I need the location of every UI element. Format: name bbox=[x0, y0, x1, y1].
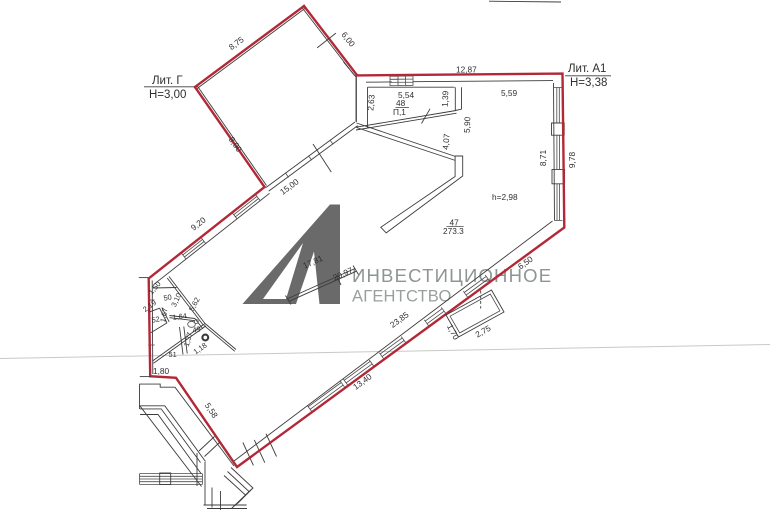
svg-text:5,90: 5,90 bbox=[462, 116, 473, 133]
svg-text:5,59: 5,59 bbox=[501, 88, 518, 98]
svg-text:h=2,98: h=2,98 bbox=[492, 192, 518, 202]
svg-text:П,1: П,1 bbox=[393, 107, 406, 117]
svg-text:273.3: 273.3 bbox=[443, 226, 464, 236]
svg-text:51: 51 bbox=[169, 350, 177, 359]
svg-text:Н=3,00: Н=3,00 bbox=[149, 89, 186, 101]
svg-text:1,39: 1,39 bbox=[440, 90, 451, 107]
svg-text:Лит. А1: Лит. А1 bbox=[568, 63, 606, 75]
svg-text:Н=3,38: Н=3,38 bbox=[570, 77, 607, 89]
svg-text:9,78: 9,78 bbox=[567, 152, 577, 169]
svg-text:12,87: 12,87 bbox=[456, 65, 477, 75]
svg-text:Лит. Г: Лит. Г bbox=[152, 75, 183, 87]
svg-text:2,63: 2,63 bbox=[365, 94, 376, 111]
svg-text:АГЕНТСТВО: АГЕНТСТВО bbox=[352, 288, 451, 306]
svg-text:49: 49 bbox=[192, 324, 202, 334]
svg-text:8,71: 8,71 bbox=[538, 150, 548, 167]
svg-text:4,07: 4,07 bbox=[440, 133, 451, 150]
svg-text:52: 52 bbox=[151, 314, 161, 324]
svg-text:1,80: 1,80 bbox=[153, 366, 170, 376]
